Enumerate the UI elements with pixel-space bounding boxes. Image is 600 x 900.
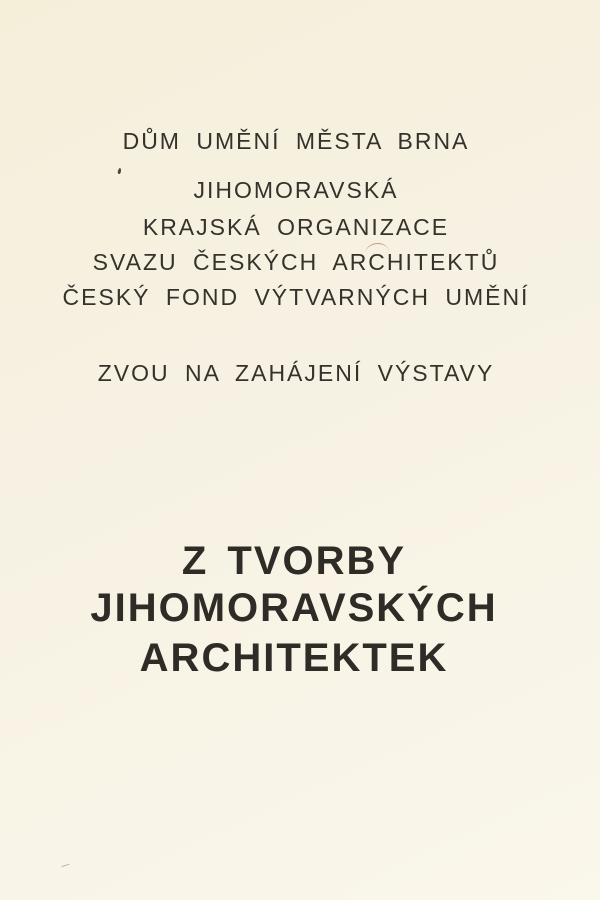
scan-artifact-red-mark: [365, 242, 390, 254]
organizer-line: SVAZU ČESKÝCH ARCHITEKTŮ: [93, 249, 500, 275]
venue-line: DŮM UMĚNÍ MĚSTA BRNA: [123, 128, 470, 154]
exhibition-title-line: JIHOMORAVSKÝCH: [90, 585, 497, 631]
paper-scratch: [61, 861, 70, 867]
exhibition-title-line: Z TVORBY: [182, 538, 406, 584]
invitation-card: DŮM UMĚNÍ MĚSTA BRNA JIHOMORAVSKÁ KRAJSK…: [0, 0, 600, 900]
print-speck: [117, 168, 121, 174]
organizer-line: ČESKÝ FOND VÝTVARNÝCH UMĚNÍ: [63, 284, 530, 310]
organizer-line: JIHOMORAVSKÁ: [193, 177, 398, 203]
organizer-line: KRAJSKÁ ORGANIZACE: [143, 214, 449, 240]
exhibition-title-line: ARCHITEKTEK: [140, 635, 449, 681]
invitation-line: ZVOU NA ZAHÁJENÍ VÝSTAVY: [98, 360, 495, 386]
